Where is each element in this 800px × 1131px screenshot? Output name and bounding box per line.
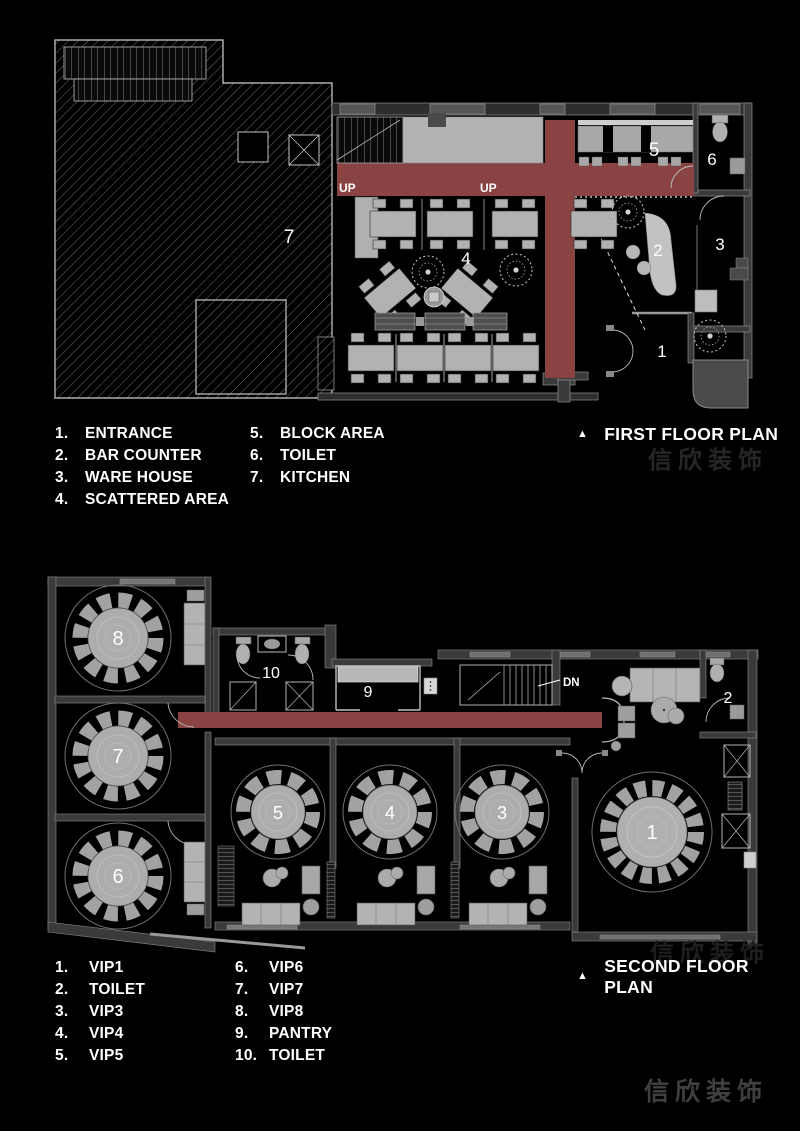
legend-item: 2.BAR COUNTER [55,445,250,467]
room-label-warehouse: 3 [715,235,724,254]
legend-item: 7.VIP7 [235,979,332,1001]
entrance-area [606,290,748,408]
wc-tank [295,637,310,644]
shaft-x [722,814,750,848]
dining-table [348,333,394,383]
legend-item: 10.TOILET [235,1045,332,1067]
legend-item: 1.ENTRANCE [55,423,250,445]
room-label-vip7: 7 [112,746,123,768]
legend-item: 8.VIP8 [235,1001,332,1023]
pantry [336,666,437,710]
planter [693,360,748,408]
watermark-text: 信欣装饰 [648,440,768,475]
shaft-x [286,682,313,710]
dining-table [571,199,617,249]
dining-table [427,199,473,249]
plan-title-text: FIRST FLOOR PLAN [604,424,778,445]
first-floor-legend: 1.ENTRANCE 2.BAR COUNTER 3.WARE HOUSE 4.… [55,423,385,511]
pantry-counter [338,667,418,682]
vip-rooms-left-wing [65,585,205,929]
vip-rooms-middle [218,765,549,925]
door-arc [168,821,194,845]
room-label-entrance: 1 [657,342,666,361]
side-table [618,706,635,721]
first-floor-plan-drawing: UP UP [0,0,800,420]
legend-item: 7.KITCHEN [250,467,385,489]
room-label-toilet: 6 [707,150,716,169]
room-label-vip1: 1 [646,822,657,844]
legend-item: 9.PANTRY [235,1023,332,1045]
room-label-kitchen: 7 [284,227,295,248]
door-arc [612,330,633,351]
shaft-x [724,745,750,777]
kitchen-stairs [64,47,206,79]
double-door-arcs [562,753,602,773]
legend-item: 1.VIP1 [55,957,235,979]
kitchen-shaft [238,132,268,162]
dining-table [445,333,491,383]
bar-counter-area [571,196,676,330]
legend-item: 5.BLOCK AREA [250,423,385,445]
wc-tank [236,637,251,644]
room-label-scattered: 4 [461,249,470,268]
vip-room-furniture [242,866,320,925]
room-label-bar: 2 [653,241,662,260]
legend-item: 6.VIP6 [235,957,332,979]
door-arc [612,351,633,372]
kitchen-shaft-x [289,135,319,165]
up-annotation-left: UP [339,181,356,195]
plan-title-text: SECOND FLOOR PLAN [604,956,800,998]
legend-item: 2.TOILET [55,979,235,1001]
sofa [184,842,205,902]
up-annotation-right: UP [480,181,497,195]
room-label-vip6: 6 [112,866,123,888]
legend-item: 3.WARE HOUSE [55,467,250,489]
sink [264,639,280,649]
sink [730,705,744,719]
side-table [187,904,204,915]
legend-item: 6.TOILET [250,445,385,467]
wc-bowl [710,664,724,682]
bar-stool [637,261,651,275]
dining-table [493,333,539,383]
watermark-text: 信欣装饰 [644,1072,768,1108]
floor-plan-sheet: UP UP [0,0,800,1131]
room-label-block: 5 [649,140,660,161]
legend-item: 5.VIP5 [55,1045,235,1067]
room-label-vip8: 8 [112,628,123,650]
plant [412,256,444,288]
room-label-vip3: 3 [497,803,507,823]
room-label-vip4: 4 [385,803,395,823]
dining-table [492,199,538,249]
door-arc [700,196,724,220]
sink [730,158,745,174]
cabinet [218,846,234,906]
booth-benches [375,313,507,330]
platform-area [337,113,543,163]
plant [694,320,726,352]
second-floor-legend: 1.VIP1 2.TOILET 3.VIP3 4.VIP4 5.VIP5 6.V… [55,957,332,1067]
folding-partition [451,862,459,918]
vip-room-furniture [469,866,547,925]
vip-room-furniture [357,866,435,925]
room-label-vip5: 5 [273,803,283,823]
legend-item: 4.VIP4 [55,1023,235,1045]
side-table [618,723,635,738]
room-label-pantry: 9 [364,684,373,701]
first-floor-title: ▲ FIRST FLOOR PLAN [577,424,778,445]
armchair [612,676,632,696]
second-floor-corridor [178,698,624,773]
dining-table [397,333,443,383]
kitchen-area [55,40,332,398]
folding-partition [327,862,335,918]
triangle-icon: ▲ [577,428,588,440]
legend-item: 4.SCATTERED AREA [55,489,250,511]
door-arc [288,655,313,680]
scattered-area [348,197,539,383]
inner-stairs [337,117,403,163]
bar-stool [626,245,640,259]
stairs-down: DN [460,665,580,705]
second-floor-plan-drawing: DN [0,560,800,960]
wc-bowl [295,644,309,664]
dining-table [370,199,416,249]
wc-bowl [713,122,728,142]
ladder [728,782,742,810]
triangle-icon: ▲ [577,970,588,982]
dn-annotation: DN [563,677,580,689]
block-area-booths [578,120,693,166]
sofa [184,603,205,665]
room-label-toilet2: 2 [724,690,733,707]
vip1-room [592,668,712,892]
room-label-toilet10: 10 [262,665,280,682]
plant [500,254,532,286]
side-table [187,590,204,601]
legend-item: 3.VIP3 [55,1001,235,1023]
second-floor-title: ▲ SECOND FLOOR PLAN [577,956,800,998]
